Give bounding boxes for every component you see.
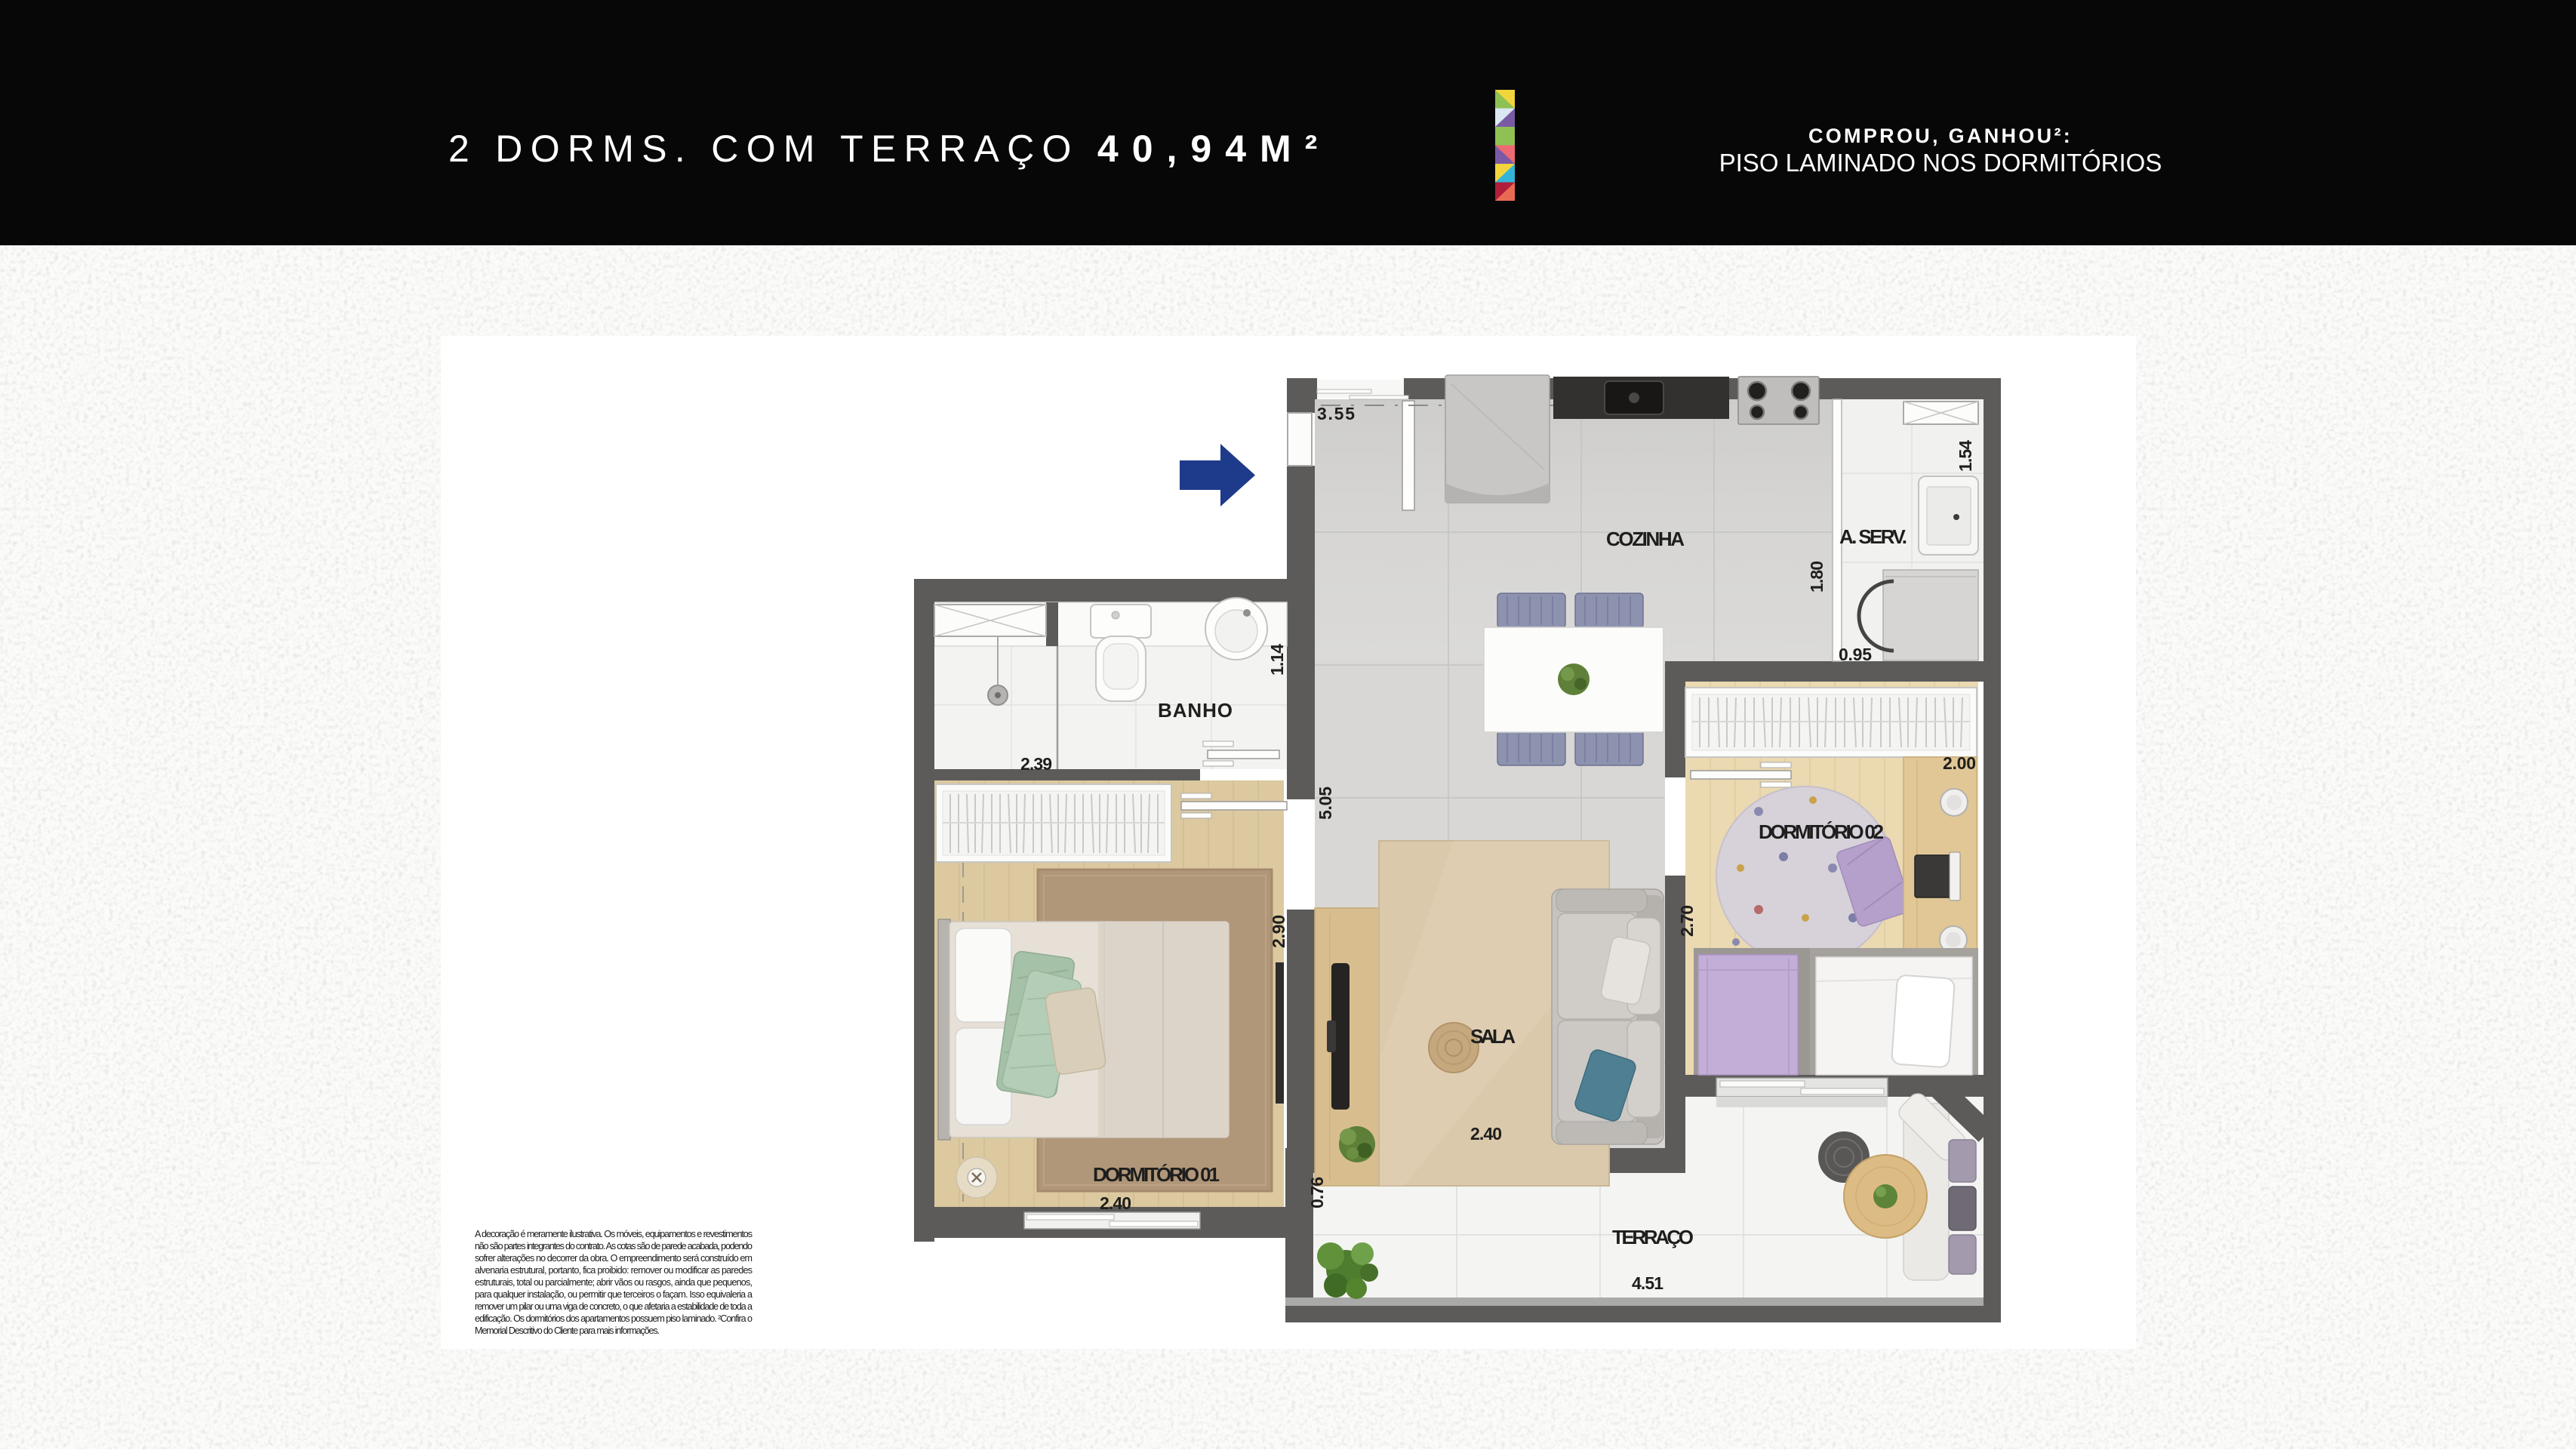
svg-text:2.70: 2.70 (1677, 905, 1697, 937)
svg-text:para qualquer instalação, ou p: para qualquer instalação, ou permitir qu… (475, 1289, 752, 1300)
svg-text:2.40: 2.40 (1100, 1193, 1131, 1213)
svg-text:PISO LAMINADO NOS DORMITÓRIOS: PISO LAMINADO NOS DORMITÓRIOS (1719, 149, 2162, 177)
svg-text:4.51: 4.51 (1632, 1273, 1663, 1293)
svg-text:alvenaria estrutural, portanto: alvenaria estrutural, portanto, fica pro… (475, 1265, 752, 1276)
svg-text:não são partes integrantes do: não são partes integrantes do contrato. … (475, 1241, 752, 1251)
svg-text:0.95: 0.95 (1839, 645, 1872, 664)
svg-text:BANHO: BANHO (1158, 699, 1233, 722)
svg-text:2 DORMS. COM TERRAÇO 40,94M²: 2 DORMS. COM TERRAÇO 40,94M² (448, 128, 1331, 170)
svg-text:5.05: 5.05 (1316, 787, 1335, 820)
svg-text:2.90: 2.90 (1269, 915, 1288, 948)
svg-text:estruturais, total ou parcialm: estruturais, total ou parcialmente; abri… (475, 1277, 752, 1288)
svg-text:0.76: 0.76 (1307, 1177, 1327, 1208)
svg-text:2.39: 2.39 (1020, 754, 1052, 774)
svg-text:1.80: 1.80 (1807, 561, 1827, 593)
svg-text:A decoração é meramente ilustr: A decoração é meramente ilustrativa. Os … (475, 1229, 752, 1239)
svg-text:sofrer alterações no decorrer: sofrer alterações no decorrer da obra. O… (475, 1253, 752, 1264)
svg-text:DORMITÓRIO 01: DORMITÓRIO 01 (1093, 1163, 1220, 1186)
svg-text:COZINHA: COZINHA (1606, 528, 1685, 550)
svg-text:3.55: 3.55 (1317, 404, 1355, 423)
svg-text:remover um pilar ou uma viga d: remover um pilar ou uma viga de concreto… (475, 1301, 752, 1312)
svg-text:2.40: 2.40 (1470, 1124, 1502, 1144)
svg-text:1.14: 1.14 (1267, 644, 1287, 676)
svg-text:COMPROU, GANHOU²:: COMPROU, GANHOU²: (1808, 125, 2073, 147)
svg-text:DORMITÓRIO 02: DORMITÓRIO 02 (1759, 820, 1884, 843)
svg-text:A. SERV.: A. SERV. (1839, 525, 1907, 548)
svg-text:1.54: 1.54 (1956, 440, 1975, 472)
svg-text:TERRAÇO: TERRAÇO (1612, 1226, 1694, 1248)
svg-text:2.00: 2.00 (1943, 753, 1976, 773)
svg-text:Memorial Descritivo do Cliente: Memorial Descritivo do Cliente para mais… (475, 1325, 660, 1336)
svg-text:edificação. Os dormitórios dos: edificação. Os dormitórios dos apartamen… (475, 1313, 752, 1324)
svg-text:SALA: SALA (1470, 1025, 1516, 1048)
